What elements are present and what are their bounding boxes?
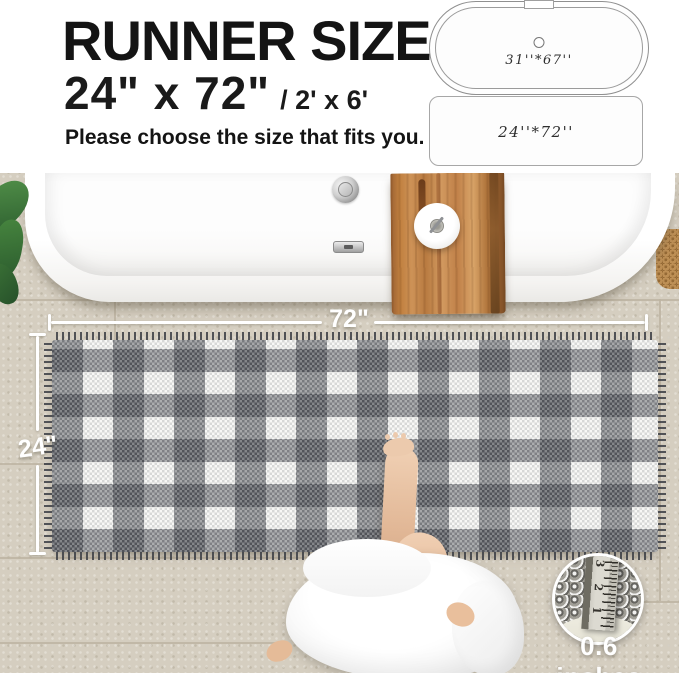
ruler-number: 1 [590, 604, 604, 617]
product-size-image: RUNNER SIZE 24" x 72"/ 2' x 6' Please ch… [0, 0, 679, 673]
bathtub-overflow-icon [524, 0, 554, 9]
overflow-plate [333, 241, 364, 253]
ruler: 3 2 1 [581, 553, 620, 631]
runner-size-label: 24''*72'' [430, 123, 642, 141]
size-main-text: 24" x 72" [64, 67, 270, 119]
bathroom-photo: 72" 24" 3 2 1 0.6 i [0, 173, 679, 673]
bathtub-outline-inner [435, 7, 643, 89]
height-dimension-line [36, 336, 39, 431]
grout-line [0, 642, 286, 644]
page-title: RUNNER SIZE [62, 8, 431, 73]
ruler-number: 3 [593, 557, 607, 570]
size-line: 24" x 72"/ 2' x 6' [64, 66, 368, 120]
thickness-label: 0.6 inches [536, 631, 662, 673]
bathtub-size-label: 31''*67'' [429, 53, 649, 68]
runner-size-diagram: 24''*72'' [429, 96, 643, 166]
size-alt-text: / 2' x 6' [280, 85, 368, 115]
person-toe [393, 432, 398, 438]
width-label: 72" [320, 305, 378, 334]
runner-rug [52, 340, 658, 552]
toilet-paper-roll [414, 203, 460, 249]
overflow-slot [344, 245, 353, 249]
drain-icon [332, 176, 359, 203]
width-dimension-line [51, 321, 322, 324]
person-toe [401, 433, 406, 439]
ruler-number: 2 [591, 581, 605, 594]
width-dimension-line [374, 321, 645, 324]
person-hand [263, 636, 296, 666]
person-robe-shoulder [303, 539, 431, 597]
rug-fringe [658, 343, 666, 549]
size-subtitle: Please choose the size that fits you. [65, 126, 424, 150]
bathtub [25, 173, 675, 302]
drain-core [338, 182, 353, 197]
width-dimension-cap-right [645, 314, 648, 331]
person-toe [385, 434, 390, 440]
bathtub-size-diagram: 31''*67'' [429, 1, 649, 95]
bathtub-drain-icon [534, 37, 545, 48]
header-section: RUNNER SIZE 24" x 72"/ 2' x 6' Please ch… [0, 0, 679, 173]
height-dimension-line [36, 465, 39, 553]
wood-bark-edge [489, 173, 499, 314]
height-dimension-cap-bottom [29, 552, 46, 555]
